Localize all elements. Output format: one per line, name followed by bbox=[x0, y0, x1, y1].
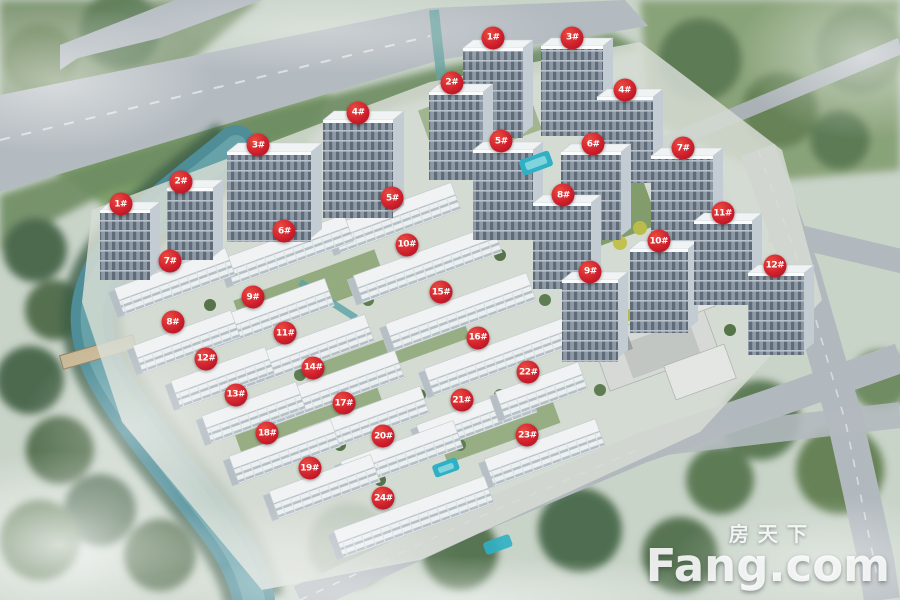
building-marker: 12# bbox=[195, 347, 218, 370]
building-marker: 9# bbox=[579, 260, 602, 283]
fang-watermark: 房天下 Fang.com bbox=[646, 518, 890, 592]
building-marker: 10# bbox=[647, 230, 670, 253]
building-marker: 5# bbox=[381, 187, 404, 210]
building-marker: 23# bbox=[516, 424, 539, 447]
tower bbox=[100, 202, 160, 280]
watermark-english-text: Fang.com bbox=[646, 540, 890, 592]
building-marker: 12# bbox=[763, 254, 786, 277]
building-marker: 22# bbox=[517, 361, 540, 384]
building-marker: 9# bbox=[241, 286, 264, 309]
building-marker: 1# bbox=[109, 193, 132, 216]
tower bbox=[748, 265, 814, 355]
building-marker: 14# bbox=[302, 356, 325, 379]
building-marker: 1# bbox=[482, 26, 505, 49]
building-marker: 15# bbox=[430, 281, 453, 304]
building-marker: 3# bbox=[561, 26, 584, 49]
building-marker: 11# bbox=[711, 202, 734, 225]
building-marker: 8# bbox=[552, 184, 575, 207]
building-marker: 7# bbox=[672, 137, 695, 160]
building-marker: 24# bbox=[372, 487, 395, 510]
tower bbox=[562, 272, 628, 362]
building-marker: 17# bbox=[332, 392, 355, 415]
building-marker: 18# bbox=[256, 422, 279, 445]
building-marker: 3# bbox=[247, 134, 270, 157]
building-marker: 2# bbox=[440, 71, 463, 94]
building-marker: 8# bbox=[161, 311, 184, 334]
building-marker: 6# bbox=[273, 220, 296, 243]
building-marker: 7# bbox=[159, 250, 182, 273]
building-marker: 2# bbox=[169, 170, 192, 193]
building-marker: 5# bbox=[490, 130, 513, 153]
building-marker: 10# bbox=[395, 233, 418, 256]
aerial-site-rendering: 1#3#2#4#4#5#3#6#7#2#8#5#1#11#6#10#10#7#9… bbox=[0, 0, 900, 600]
building-marker: 6# bbox=[582, 133, 605, 156]
building-marker: 21# bbox=[450, 389, 473, 412]
building-marker: 20# bbox=[372, 425, 395, 448]
building-marker: 4# bbox=[347, 101, 370, 124]
building-marker: 11# bbox=[274, 322, 297, 345]
tower bbox=[630, 241, 698, 333]
building-marker: 13# bbox=[224, 383, 247, 406]
building-marker: 4# bbox=[613, 79, 636, 102]
building-marker: 19# bbox=[298, 457, 321, 480]
building-marker: 16# bbox=[466, 326, 489, 349]
